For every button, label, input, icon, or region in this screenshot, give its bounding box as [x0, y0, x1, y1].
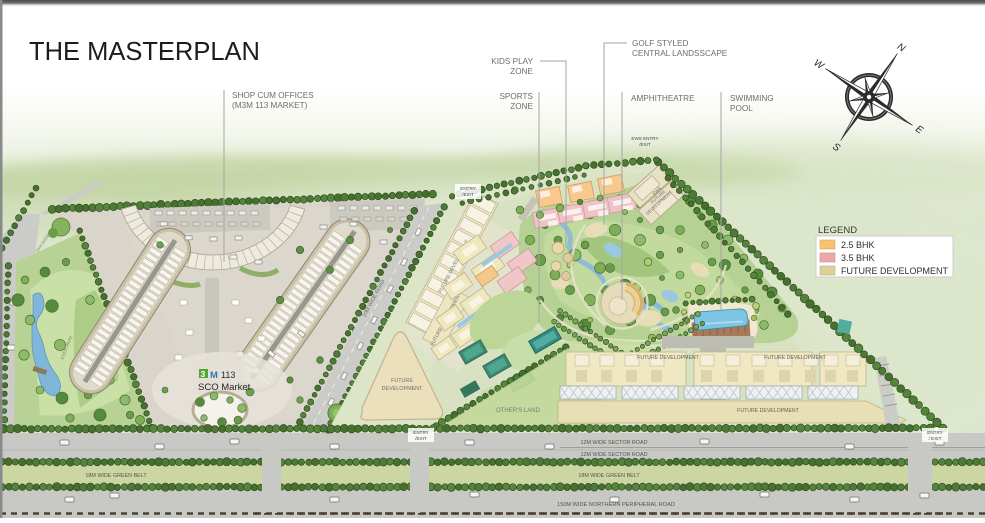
svg-text:GOLF STYLED: GOLF STYLED — [632, 39, 689, 48]
svg-text:113: 113 — [221, 370, 235, 380]
svg-text:POOL: POOL — [730, 104, 753, 113]
svg-text:ENTRY: ENTRY — [927, 430, 943, 435]
svg-text:18M WIDE GREEN BELT: 18M WIDE GREEN BELT — [578, 473, 640, 479]
svg-text:FUTURE DEVELOPMENT: FUTURE DEVELOPMENT — [764, 355, 827, 361]
svg-text:ZONE: ZONE — [510, 102, 533, 111]
svg-text:CENTRAL LANDSSCAPE: CENTRAL LANDSSCAPE — [632, 49, 728, 58]
svg-text:DEVELOPMENT: DEVELOPMENT — [382, 386, 423, 392]
svg-text:LEGEND: LEGEND — [818, 225, 857, 236]
svg-text:(M3M 113 MARKET): (M3M 113 MARKET) — [232, 101, 308, 110]
svg-text:FUTURE DEVELOPMENT: FUTURE DEVELOPMENT — [637, 355, 700, 361]
svg-text:EWS ENTRY: EWS ENTRY — [631, 136, 658, 141]
svg-text:12M WIDE SECTOR ROAD: 12M WIDE SECTOR ROAD — [581, 452, 648, 458]
svg-text:ZONE: ZONE — [510, 67, 533, 76]
svg-text:/EXIT: /EXIT — [639, 142, 651, 147]
svg-text:FUTURE: FUTURE — [391, 378, 413, 384]
svg-text:ENTRY: ENTRY — [460, 186, 476, 191]
svg-text:ENTRY: ENTRY — [413, 430, 429, 435]
svg-text:3.5 BHK: 3.5 BHK — [841, 253, 875, 263]
svg-text:SPORTS: SPORTS — [499, 92, 533, 101]
svg-text:SWIMMING: SWIMMING — [730, 94, 774, 103]
svg-text:/ EXIT: / EXIT — [929, 436, 942, 441]
svg-text:AMPHITHEATRE: AMPHITHEATRE — [631, 94, 695, 103]
svg-text:OTHER'S LAND: OTHER'S LAND — [496, 408, 540, 414]
svg-text:12M WIDE SECTOR ROAD: 12M WIDE SECTOR ROAD — [581, 440, 648, 446]
svg-text:M: M — [210, 370, 218, 381]
svg-text:150M WIDE NORTHERN PERIPHERAL: 150M WIDE NORTHERN PERIPHERAL ROAD — [557, 502, 675, 508]
svg-text:THE MASTERPLAN: THE MASTERPLAN — [29, 38, 260, 66]
svg-text:FUTURE DEVELOPMENT: FUTURE DEVELOPMENT — [737, 408, 800, 414]
svg-text:18M WIDE GREEN BELT: 18M WIDE GREEN BELT — [85, 473, 147, 479]
svg-text:FUTURE DEVELOPMENT: FUTURE DEVELOPMENT — [841, 266, 949, 276]
svg-text:SCO Market: SCO Market — [198, 382, 251, 393]
svg-text:/EXIT: /EXIT — [462, 192, 474, 197]
svg-text:3: 3 — [201, 369, 206, 379]
svg-text:/EXIT: /EXIT — [415, 436, 427, 441]
svg-text:KIDS PLAY: KIDS PLAY — [491, 57, 533, 66]
svg-text:2.5 BHK: 2.5 BHK — [841, 240, 875, 250]
svg-text:SHOP CUM OFFICES: SHOP CUM OFFICES — [232, 91, 314, 100]
